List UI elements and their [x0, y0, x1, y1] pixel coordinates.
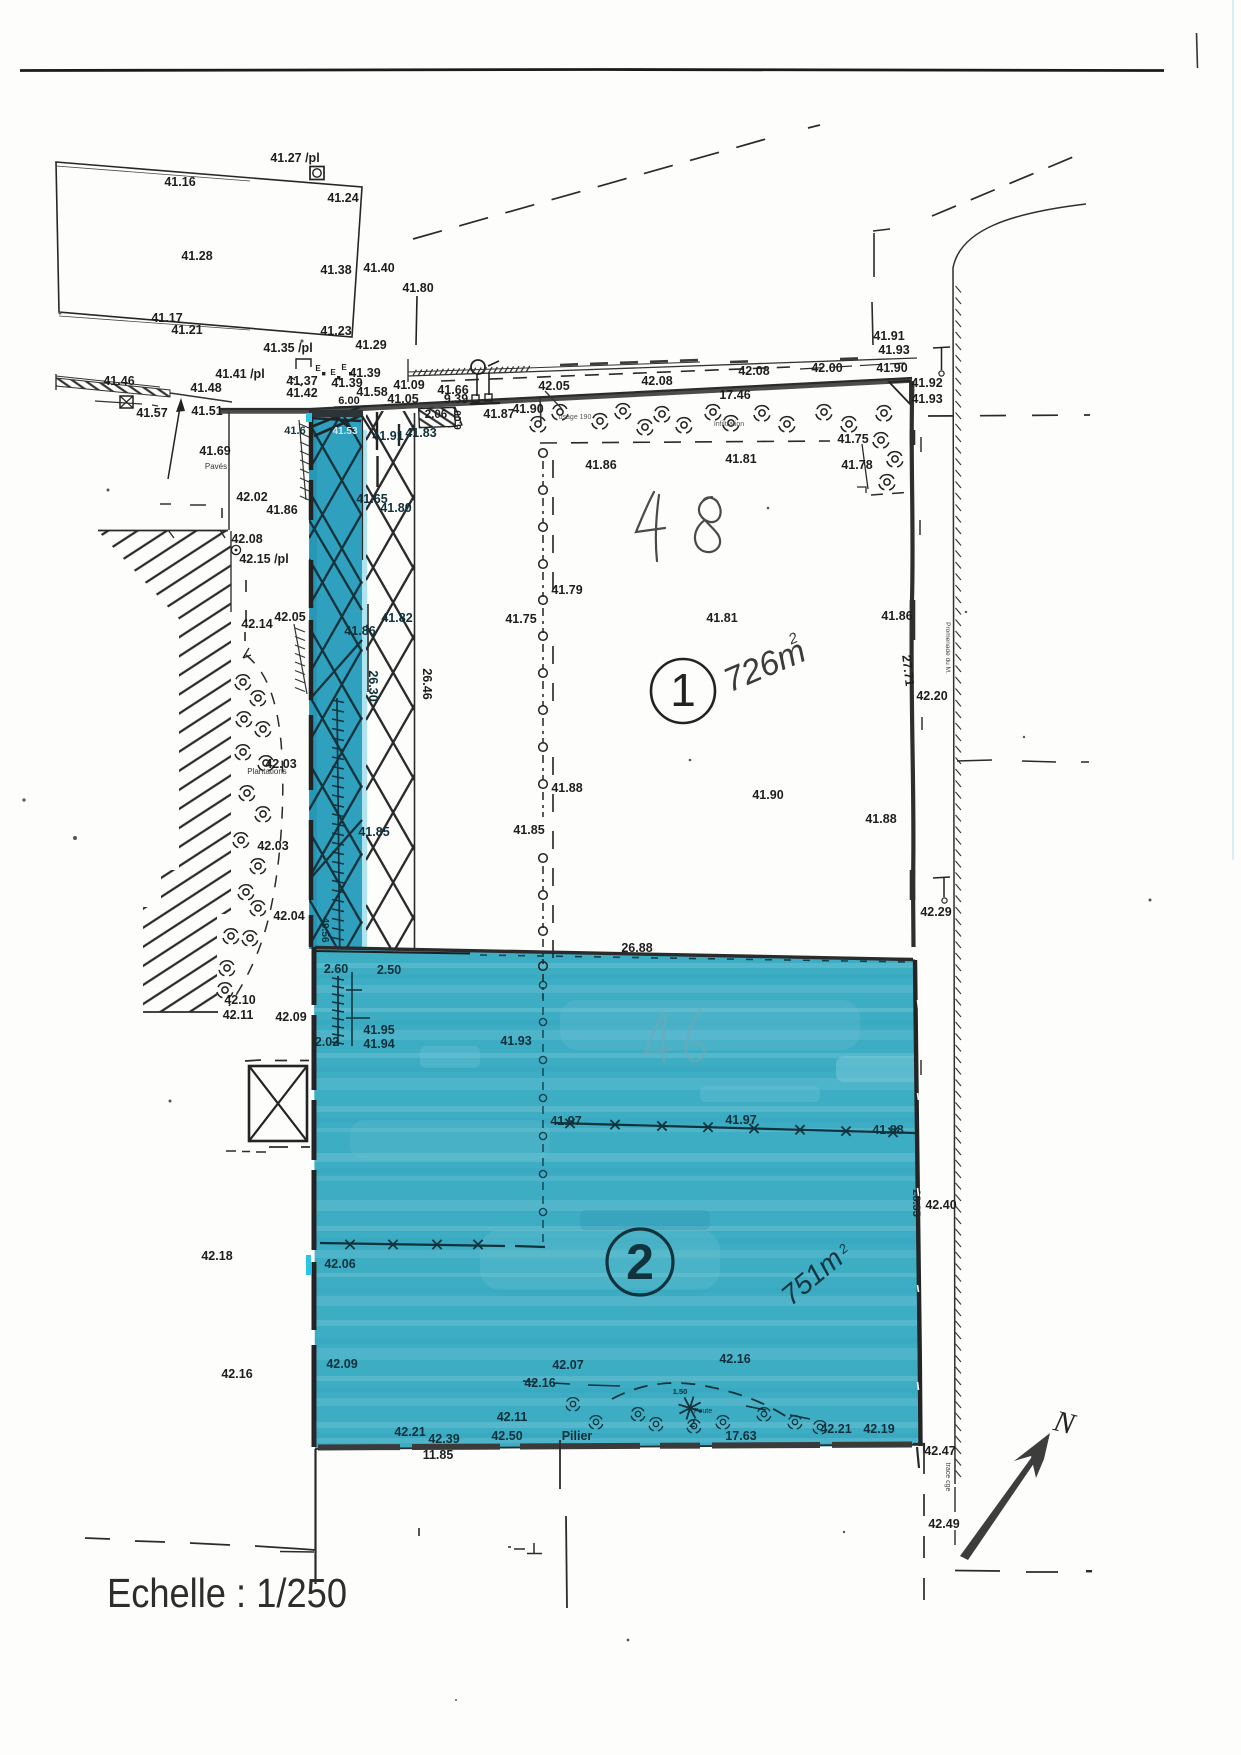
- svg-text:41.90: 41.90: [512, 402, 543, 416]
- svg-text:42.08: 42.08: [641, 374, 672, 388]
- svg-text:42.29: 42.29: [920, 905, 951, 919]
- svg-text:41.09: 41.09: [393, 378, 424, 392]
- svg-text:41.78: 41.78: [841, 458, 872, 472]
- svg-text:42.05: 42.05: [538, 379, 569, 393]
- svg-text:26.46: 26.46: [420, 668, 434, 699]
- svg-text:41.94: 41.94: [363, 1037, 394, 1051]
- svg-text:41.86: 41.86: [585, 458, 616, 472]
- svg-text:42.07: 42.07: [552, 1358, 583, 1372]
- svg-text:42.08: 42.08: [738, 364, 769, 378]
- svg-text:2: 2: [626, 1234, 654, 1290]
- svg-text:41.86: 41.86: [344, 624, 375, 638]
- svg-text:9.39: 9.39: [444, 392, 468, 406]
- svg-text:26.30: 26.30: [366, 670, 380, 701]
- svg-text:42.15 /pl: 42.15 /pl: [239, 552, 288, 566]
- svg-text:6.00: 6.00: [338, 395, 359, 407]
- svg-text:42.11: 42.11: [223, 1008, 254, 1022]
- svg-text:41.23: 41.23: [320, 324, 351, 338]
- svg-text:42.49: 42.49: [928, 1517, 959, 1531]
- svg-text:42.02: 42.02: [236, 490, 267, 504]
- svg-text:42.19: 42.19: [863, 1422, 894, 1436]
- svg-text:Infiltration: Infiltration: [714, 421, 744, 428]
- svg-text:42.08: 42.08: [231, 532, 262, 546]
- svg-text:17.63: 17.63: [725, 1429, 756, 1443]
- svg-text:E: E: [315, 364, 321, 373]
- svg-text:41.41 /pl: 41.41 /pl: [215, 367, 264, 381]
- svg-text:41.93: 41.93: [911, 392, 942, 406]
- svg-text:6.00: 6.00: [453, 410, 464, 430]
- svg-text:Plantations: Plantations: [247, 767, 287, 776]
- svg-text:41.90: 41.90: [876, 361, 907, 375]
- svg-text:Promenade du M.: Promenade du M.: [944, 622, 951, 674]
- svg-text:1: 1: [670, 664, 696, 716]
- svg-text:42.40: 42.40: [925, 1198, 956, 1212]
- svg-text:41.97: 41.97: [725, 1113, 756, 1127]
- svg-text:42.16: 42.16: [524, 1376, 555, 1390]
- svg-text:42.00: 42.00: [811, 361, 842, 375]
- svg-text:41.86: 41.86: [881, 609, 912, 623]
- svg-text:42.14: 42.14: [241, 617, 272, 631]
- svg-text:41.80: 41.80: [380, 501, 411, 515]
- svg-text:41.91: 41.91: [873, 329, 904, 343]
- svg-text:42.10: 42.10: [224, 993, 255, 1007]
- svg-text:41.92: 41.92: [911, 376, 942, 390]
- svg-text:41.69: 41.69: [199, 444, 230, 458]
- svg-text:42.18: 42.18: [201, 1249, 232, 1263]
- svg-text:42.11: 42.11: [497, 1410, 528, 1424]
- svg-text:41.53: 41.53: [332, 426, 357, 437]
- svg-text:42.20: 42.20: [916, 689, 947, 703]
- svg-text:41.83: 41.83: [405, 426, 436, 440]
- svg-text:usage 190: usage 190: [559, 414, 592, 421]
- svg-text:42.05: 42.05: [274, 610, 305, 624]
- svg-text:41.91: 41.91: [372, 429, 403, 443]
- svg-text:41.16: 41.16: [164, 175, 195, 189]
- svg-text:41.80: 41.80: [402, 281, 433, 295]
- svg-text:2.50: 2.50: [377, 963, 401, 977]
- svg-text:41.88: 41.88: [551, 781, 582, 795]
- svg-text:41.81: 41.81: [725, 452, 756, 466]
- svg-text:41.24: 41.24: [327, 191, 358, 205]
- svg-text:49.56: 49.56: [319, 917, 330, 942]
- svg-text:42.16: 42.16: [719, 1352, 750, 1366]
- svg-text:41.28: 41.28: [181, 249, 212, 263]
- svg-text:42.06: 42.06: [324, 1257, 355, 1271]
- svg-text:41.05: 41.05: [387, 392, 418, 406]
- svg-text:41.29: 41.29: [355, 338, 386, 352]
- svg-text:41.79: 41.79: [551, 583, 582, 597]
- svg-text:42.09: 42.09: [275, 1010, 306, 1024]
- svg-text:41.75: 41.75: [505, 612, 536, 626]
- svg-text:2: 2: [689, 1418, 695, 1430]
- svg-text:41.85: 41.85: [358, 825, 389, 839]
- svg-text:2.06: 2.06: [425, 409, 447, 421]
- svg-text:42.09: 42.09: [326, 1357, 357, 1371]
- svg-text:41.42: 41.42: [286, 386, 317, 400]
- svg-text:41.88: 41.88: [865, 812, 896, 826]
- svg-text:41.51: 41.51: [191, 404, 222, 418]
- svg-text:Pavés: Pavés: [205, 462, 227, 471]
- svg-text:41.39: 41.39: [349, 366, 380, 380]
- svg-text:41.21: 41.21: [171, 323, 202, 337]
- svg-text:17.46: 17.46: [719, 388, 750, 402]
- svg-text:41.97: 41.97: [550, 1114, 581, 1128]
- svg-text:41.82: 41.82: [381, 611, 412, 625]
- svg-text:41.85: 41.85: [513, 823, 544, 837]
- svg-text:Pilier: Pilier: [562, 1429, 593, 1443]
- svg-text:41.90: 41.90: [752, 788, 783, 802]
- svg-text:41.87: 41.87: [483, 407, 514, 421]
- svg-text:42.50: 42.50: [491, 1429, 522, 1443]
- svg-text:Poute: Poute: [694, 1408, 712, 1415]
- svg-text:42.04: 42.04: [273, 909, 304, 923]
- svg-text:41.95: 41.95: [363, 1023, 394, 1037]
- svg-text:E: E: [341, 363, 347, 372]
- svg-text:41.58: 41.58: [356, 385, 387, 399]
- svg-text:41.75: 41.75: [837, 432, 868, 446]
- svg-text:1.50: 1.50: [673, 1387, 688, 1396]
- svg-text:42.03: 42.03: [257, 839, 288, 853]
- svg-text:41.38: 41.38: [320, 263, 351, 277]
- svg-text:41.46: 41.46: [103, 374, 134, 388]
- svg-text:41.86: 41.86: [266, 503, 297, 517]
- svg-text:42.16: 42.16: [221, 1367, 252, 1381]
- svg-text:41.81: 41.81: [706, 611, 737, 625]
- svg-text:Echelle : 1/250: Echelle : 1/250: [107, 1570, 347, 1616]
- svg-text:42.47: 42.47: [924, 1444, 955, 1458]
- svg-text:2.60: 2.60: [324, 962, 348, 976]
- svg-text:41.6: 41.6: [284, 425, 305, 437]
- svg-text:41.93: 41.93: [878, 343, 909, 357]
- svg-text:41.40: 41.40: [363, 261, 394, 275]
- svg-text:11.85: 11.85: [423, 1448, 454, 1462]
- svg-text:41.57: 41.57: [136, 406, 167, 420]
- svg-text:41.93: 41.93: [500, 1034, 531, 1048]
- svg-text:41.27 /pl: 41.27 /pl: [270, 151, 319, 165]
- svg-text:41.88: 41.88: [872, 1123, 903, 1137]
- svg-text:42.21: 42.21: [394, 1425, 425, 1439]
- svg-text:41.35 /pl: 41.35 /pl: [263, 341, 312, 355]
- svg-text:trace cge: trace cge: [944, 1463, 951, 1492]
- svg-text:41.48: 41.48: [190, 381, 221, 395]
